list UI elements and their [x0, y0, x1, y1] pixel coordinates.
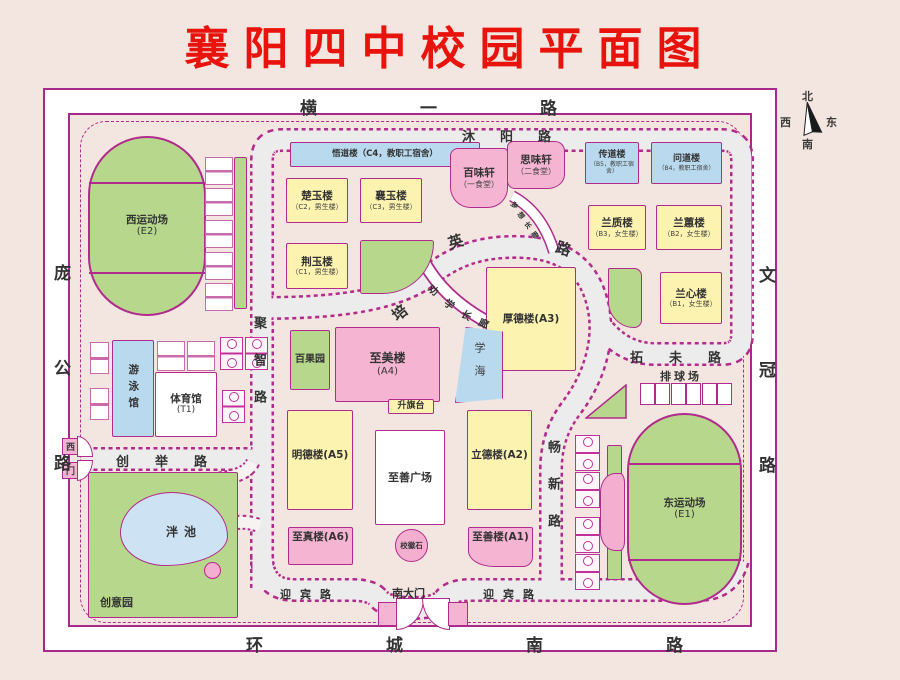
- volleyball-court: [702, 383, 732, 405]
- grandstand: [600, 473, 625, 551]
- building-zhizhen-label: 至真楼(A6): [292, 531, 349, 544]
- volleyball-court: [640, 383, 670, 405]
- emblem-stone: 校徽石: [395, 529, 428, 562]
- building-lanxin-label: 兰心楼: [675, 288, 707, 301]
- road-label-panggong: 庞公路: [48, 264, 73, 549]
- building-mingde: 明德楼(A5): [287, 410, 353, 510]
- court: [205, 188, 233, 216]
- building-siweixuan-label: 思味轩: [520, 154, 552, 167]
- building-wendao-sub: （B4，教职工宿舍）: [659, 165, 715, 172]
- building-jingyu-sub: （C1，男生楼）: [291, 268, 342, 276]
- gymnasium-label: 体育馆: [170, 393, 202, 406]
- compass-south-label: 南: [802, 136, 813, 152]
- building-lide: 立德楼(A2): [467, 410, 532, 510]
- south-gate-pillar: [448, 602, 468, 626]
- volleyball-court: [671, 383, 701, 405]
- basketball-court: [575, 554, 600, 590]
- pond-label: 泮池: [166, 523, 202, 540]
- building-wendao-label: 问道楼: [673, 154, 700, 165]
- building-lanxin-sub: （B1，女生楼）: [665, 300, 716, 308]
- green-triangle-area: [585, 384, 627, 419]
- building-xiangyu-label: 襄玉楼: [375, 190, 407, 203]
- basketball-court: [222, 390, 245, 423]
- building-xiangyu-sub: （C3，男生楼）: [365, 203, 416, 211]
- building-jingyu: 荆玉楼 （C1，男生楼）: [286, 243, 348, 289]
- court: [187, 341, 215, 371]
- building-chuandao-label: 传道楼: [598, 150, 625, 161]
- building-chuyu: 楚玉楼 （C2，男生楼）: [286, 178, 348, 223]
- creative-garden-label: 创意园: [100, 594, 133, 610]
- road-label-tuowei: 拓未路: [630, 347, 747, 366]
- building-baiweixuan-label: 百味轩: [463, 167, 495, 180]
- court: [205, 252, 233, 280]
- orchard-baiguoyuan: 百果园: [290, 330, 330, 390]
- track-line: [89, 272, 205, 274]
- garden-feature-circle: [204, 562, 221, 579]
- orchard-label: 百果园: [295, 354, 325, 366]
- road-label-muyang: 沐阳路: [462, 126, 576, 145]
- pool-xuehai-label: 学海: [471, 342, 487, 388]
- flag-platform: 升旗台: [388, 399, 434, 414]
- flag-platform-label: 升旗台: [397, 401, 424, 412]
- compass-needle-icon: [794, 98, 826, 138]
- east-stadium-label: 东运动场: [664, 497, 706, 510]
- court: [205, 220, 233, 248]
- volleyball-label: 排球场: [660, 368, 702, 384]
- road-label-wenguan: 文冠路: [753, 266, 778, 551]
- west-stadium-code: (E2): [137, 226, 157, 238]
- gymnasium: 体育馆 (T1): [155, 372, 217, 437]
- swimming-pool-building: 游泳馆: [112, 340, 154, 437]
- gymnasium-code: (T1): [177, 405, 195, 416]
- zhishan-square-label: 至善广场: [388, 471, 432, 484]
- building-chuandao-sub: （B5，教职工宿舍）: [586, 161, 638, 175]
- basketball-court: [220, 337, 243, 370]
- road-label-juzhi: 聚智路: [249, 316, 268, 427]
- road-label-yingbin-left: 迎宾路: [280, 586, 340, 602]
- building-siweixuan: 思味轩 （二食堂）: [507, 141, 565, 189]
- building-lanhui: 兰蕙楼 （B2，女生楼）: [656, 205, 722, 250]
- building-lanzhi-label: 兰质楼: [601, 217, 633, 230]
- basketball-court: [575, 435, 600, 471]
- court: [205, 283, 233, 311]
- building-mingde-label: 明德楼(A5): [292, 449, 349, 462]
- building-xiangyu: 襄玉楼 （C3，男生楼）: [360, 178, 422, 223]
- swimming-pool-label: 游泳馆: [127, 364, 140, 414]
- road-label-huanchengnan: 环城南路: [246, 631, 806, 656]
- compass: 北 西 东 南: [780, 88, 840, 152]
- building-baiweixuan: 百味轩 （一食堂）: [450, 148, 508, 208]
- building-wendao: 问道楼 （B4，教职工宿舍）: [651, 142, 722, 184]
- basketball-court: [575, 472, 600, 508]
- building-chuandao: 传道楼 （B5，教职工宿舍）: [585, 142, 639, 184]
- building-lanzhi: 兰质楼 （B3，女生楼）: [588, 205, 646, 250]
- building-houde-label: 厚德楼(A3): [503, 313, 560, 326]
- road-label-hengyi: 横一路: [300, 94, 660, 119]
- east-stadium: 东运动场 (E1): [627, 413, 742, 605]
- building-zhimei: 至美楼 (A4): [335, 327, 440, 402]
- track-line: [628, 559, 741, 561]
- building-lanhui-label: 兰蕙楼: [673, 217, 705, 230]
- building-siweixuan-sub: （二食堂）: [516, 167, 556, 177]
- south-gate-pillar: [378, 602, 398, 626]
- compass-west-label: 西: [780, 114, 791, 130]
- building-zhizhen: 至真楼(A6): [288, 527, 353, 565]
- building-jingyu-label: 荆玉楼: [301, 256, 333, 269]
- east-stadium-code: (E1): [674, 509, 694, 521]
- road-label-yingbin-right: 迎宾路: [483, 586, 543, 602]
- court: [205, 157, 233, 185]
- building-lanxin: 兰心楼 （B1，女生楼）: [660, 272, 722, 324]
- building-lide-label: 立德楼(A2): [471, 449, 528, 462]
- table-tennis-area: [90, 388, 109, 420]
- building-zhishan: 至善楼(A1): [468, 527, 533, 567]
- table-tennis-area: [90, 342, 109, 374]
- compass-east-label: 东: [826, 114, 837, 130]
- zhishan-square: 至善广场: [375, 430, 445, 525]
- building-zhimei-code: (A4): [377, 366, 398, 378]
- west-stadium-label: 西运动场: [126, 214, 168, 227]
- page-title: 襄阳四中校园平面图: [0, 12, 900, 77]
- building-zhimei-label: 至美楼: [369, 351, 405, 365]
- building-zhishan-label: 至善楼(A1): [472, 531, 529, 544]
- building-chuyu-label: 楚玉楼: [301, 190, 333, 203]
- track-line: [89, 182, 205, 184]
- building-lanzhi-sub: （B3，女生楼）: [591, 230, 642, 238]
- track-line: [628, 463, 741, 465]
- west-stadium: 西运动场 (E2): [88, 136, 206, 316]
- building-lanhui-sub: （B2，女生楼）: [663, 230, 714, 238]
- emblem-stone-label: 校徽石: [400, 541, 423, 550]
- court: [157, 341, 185, 371]
- basketball-court: [575, 517, 600, 553]
- building-wudao-label: 悟道楼（C4，教职工宿舍）: [332, 149, 438, 159]
- building-baiweixuan-sub: （一食堂）: [459, 180, 499, 190]
- green-strip: [234, 157, 247, 309]
- building-chuyu-sub: （C2，男生楼）: [291, 203, 342, 211]
- south-gate-label: 南大门: [392, 585, 425, 601]
- road-label-chuangju: 创举路: [116, 451, 233, 470]
- road-label-changxin: 畅新路: [543, 440, 562, 551]
